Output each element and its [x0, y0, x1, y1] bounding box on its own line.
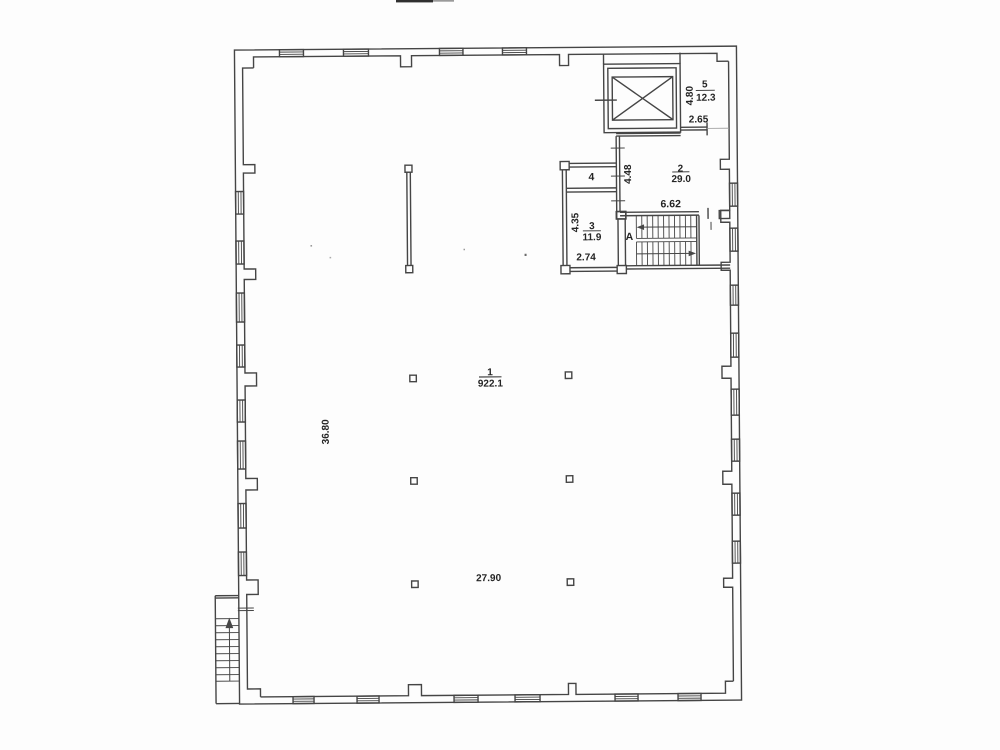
svg-text:2.74: 2.74: [576, 252, 596, 263]
svg-text:27.90: 27.90: [476, 573, 502, 584]
svg-text:11.9: 11.9: [582, 232, 601, 243]
svg-text:A: A: [626, 231, 634, 243]
svg-text:1: 1: [487, 367, 493, 378]
svg-text:6.62: 6.62: [660, 198, 681, 210]
svg-text:4.35: 4.35: [570, 212, 581, 232]
svg-text:922.1: 922.1: [478, 378, 504, 389]
svg-text:2.65: 2.65: [689, 114, 709, 125]
svg-text:12.3: 12.3: [696, 93, 716, 104]
svg-text:2: 2: [678, 164, 684, 175]
svg-text:29.0: 29.0: [671, 174, 691, 185]
svg-text:4: 4: [588, 171, 594, 183]
svg-text:4.48: 4.48: [623, 164, 634, 184]
svg-text:4.80: 4.80: [685, 85, 696, 105]
svg-text:5: 5: [702, 79, 708, 90]
svg-text:3: 3: [589, 221, 595, 232]
svg-text:36.80: 36.80: [321, 419, 332, 445]
